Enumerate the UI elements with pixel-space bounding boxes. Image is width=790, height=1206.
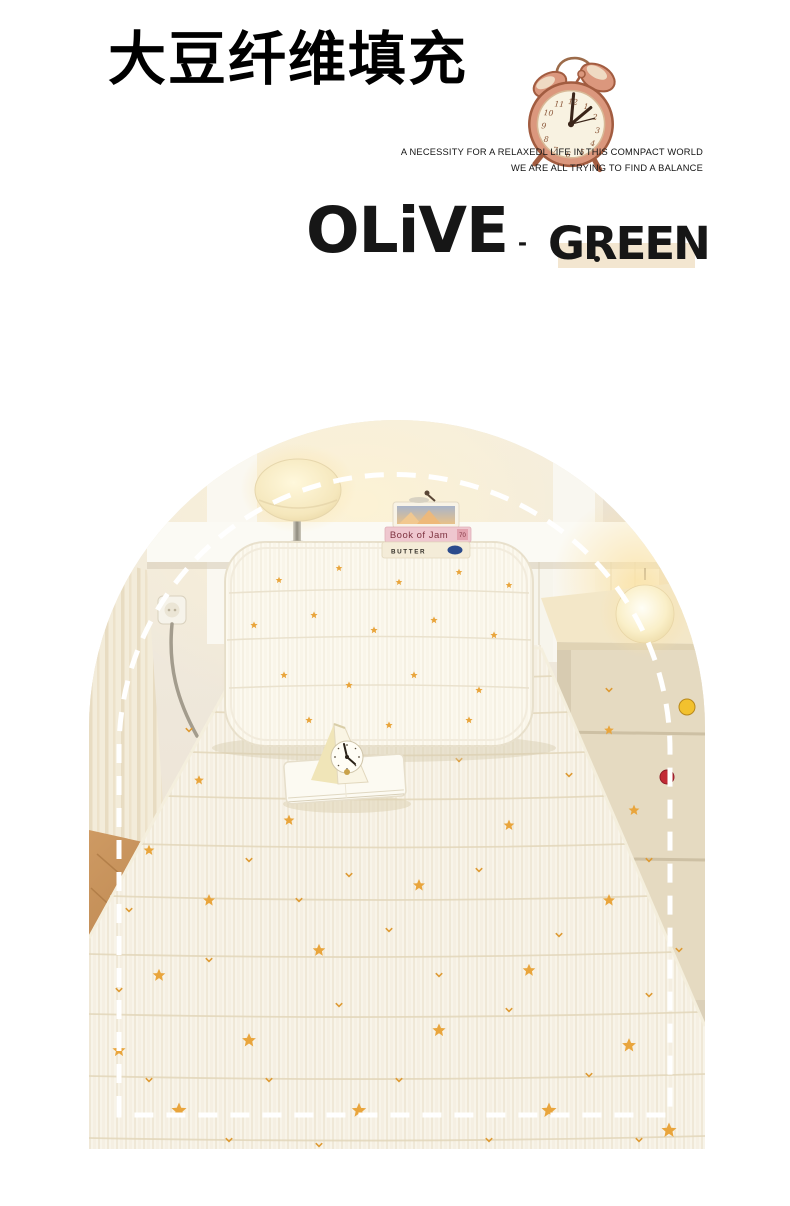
brand-wordmark-olive: OLiVE: [306, 199, 508, 262]
clock-number-3: 3: [595, 126, 601, 135]
brand-wordmark-green: GREEN: [548, 221, 709, 266]
poster-canvas: 大豆纤维填充 12 1 2 3 4 5 6 7: [0, 0, 790, 1206]
book-label-jam: 70: [459, 533, 466, 539]
clock-number-8: 8: [543, 135, 549, 144]
pillow: [212, 542, 556, 762]
book-title-butter: BUTTER: [391, 549, 426, 556]
tagline-line-1: A NECESSITY FOR A RELAXEDL LIFE IN THIS …: [401, 145, 703, 161]
ball-lamp: [599, 566, 691, 658]
brand-highlight-block: [558, 243, 695, 268]
brand-dot-accent: [594, 256, 600, 262]
clock-number-2: 2: [591, 112, 598, 121]
brand-separator: -: [518, 227, 527, 258]
clock-number-11: 11: [554, 99, 565, 109]
tagline-block: A NECESSITY FOR A RELAXEDL LIFE IN THIS …: [401, 145, 703, 176]
clock-number-10: 10: [543, 108, 554, 118]
book-spine-jam: Book of Jam 70: [385, 527, 471, 542]
butter-logo-oval: [448, 546, 463, 555]
page-title: 大豆纤维填充: [108, 12, 468, 96]
nightstand-knob-yellow: [679, 699, 695, 715]
product-photo: Book of Jam 70 BUTTER: [89, 420, 705, 1149]
clock-number-9: 9: [541, 121, 547, 130]
bedroom-scene: Book of Jam 70 BUTTER: [89, 420, 705, 1149]
tagline-line-2: WE ARE ALL TRYING TO FIND A BALANCE: [401, 161, 703, 177]
book-title-jam: Book of Jam: [390, 530, 448, 541]
book-spine-butter: BUTTER: [382, 542, 470, 558]
tent-clock-pendulum: [344, 769, 350, 775]
